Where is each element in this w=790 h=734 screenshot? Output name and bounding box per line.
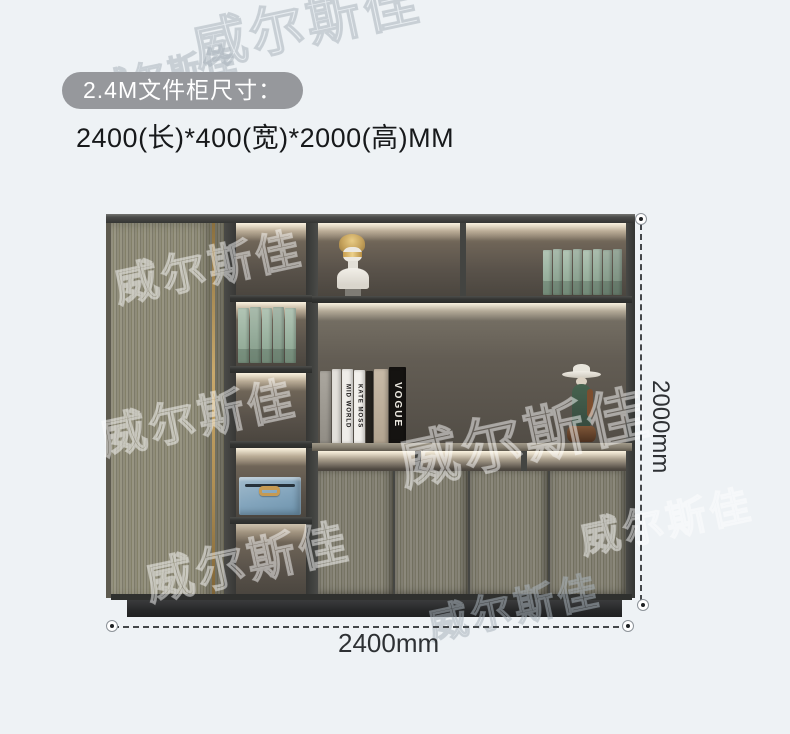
book-spine: [320, 371, 331, 443]
upper-shelf: [312, 296, 632, 303]
column-shelf: [230, 366, 312, 373]
blue-storage-box: [239, 477, 301, 515]
size-dimensions-text: 2400(长)*400(宽)*2000(高)MM: [76, 116, 454, 155]
column-shelf: [230, 441, 312, 448]
lower-doors-row: [318, 471, 626, 597]
cabinet-right-wall: [626, 223, 635, 598]
fashion-books: MID WORLD KATE MOSS VOGUE: [320, 367, 408, 443]
lady-figurine: [561, 362, 601, 443]
width-label: 2400mm: [338, 628, 439, 659]
lower-door-3: [470, 471, 548, 597]
slot-niche-1: [318, 451, 415, 471]
product-image: 威尔斯佳 威尔斯佳 2.4M文件柜尺寸： 2400(长)*400(宽)*2000…: [0, 0, 790, 734]
left-door-edge: [215, 223, 224, 598]
height-label: 2000mm: [646, 380, 674, 473]
column-right-wall: [306, 223, 318, 598]
figurine-base: [567, 426, 596, 442]
green-binders-top: [543, 249, 624, 295]
roman-bust: [334, 233, 372, 296]
book-spine: [332, 369, 341, 443]
book-spine-mid-world: MID WORLD: [342, 369, 353, 443]
column-compartment-1: [236, 223, 306, 295]
book-spine: [366, 371, 373, 443]
book-spine-vogue: VOGUE: [389, 367, 406, 443]
column-left-wall: [224, 223, 236, 598]
column-compartment-5: [236, 524, 306, 594]
size-badge: 2.4M文件柜尺寸：: [62, 72, 303, 109]
lower-door-1: [318, 471, 393, 597]
figurine-scarf: [587, 389, 593, 417]
watermark: 威尔斯佳: [184, 0, 427, 82]
dimension-marker-top: [635, 213, 647, 225]
counter-shelf: [312, 443, 632, 451]
dimension-marker-bottom: [637, 599, 649, 611]
column-compartment-3: [236, 373, 306, 441]
cabinet-top-panel: [106, 214, 635, 223]
dimension-marker-right: [622, 620, 634, 632]
dimension-marker-left: [106, 620, 118, 632]
height-dimension-line: [640, 224, 642, 601]
green-binders-column: [238, 307, 296, 363]
book-spine: [374, 369, 388, 443]
bust-chest: [337, 268, 369, 289]
bust-glasses: [343, 252, 362, 257]
column-shelf: [230, 295, 312, 302]
bust-base: [345, 289, 361, 296]
slot-niche-3: [527, 451, 626, 471]
slot-niche-2: [421, 451, 521, 471]
cabinet-plinth: [127, 600, 622, 617]
lower-door-4: [550, 471, 626, 597]
left-wardrobe-door: [111, 223, 212, 598]
box-gold-handle: [259, 486, 280, 496]
lower-door-2: [395, 471, 468, 597]
book-spine-kate-moss: KATE MOSS: [354, 370, 365, 443]
column-shelf: [230, 517, 312, 524]
